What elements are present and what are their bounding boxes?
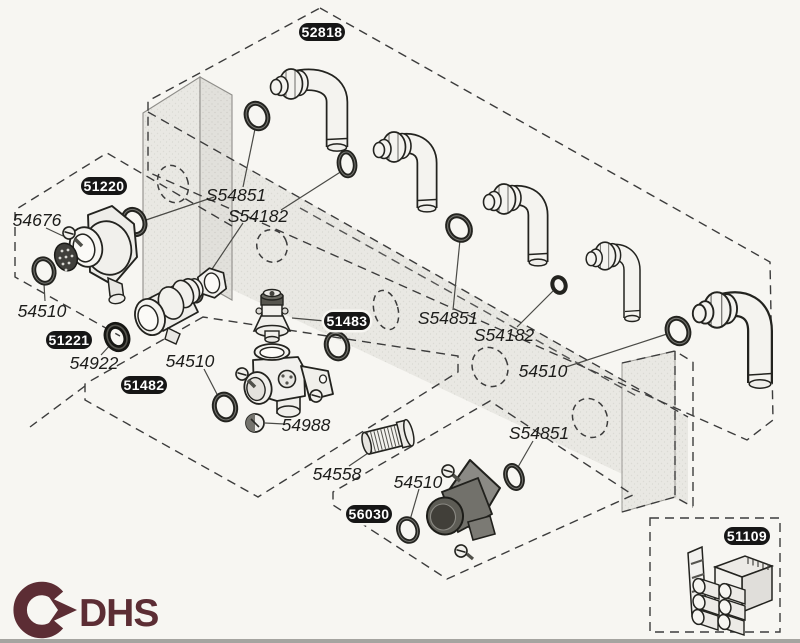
part-label-s54182-mid: S54182 (474, 325, 535, 345)
svg-text:51109: 51109 (727, 528, 767, 544)
svg-text:51482: 51482 (124, 377, 165, 393)
part-badge-56030: 56030 (344, 503, 395, 526)
part-badge-51109: 51109 (722, 525, 773, 548)
part-label-s54851-top: S54851 (206, 185, 266, 205)
part-label-54510-bottom: 54510 (394, 472, 443, 492)
part-54988-plug (246, 414, 264, 432)
part-badge-51220: 51220 (79, 175, 130, 198)
part-label-54510-left: 54510 (18, 301, 67, 321)
part-badge-52818: 52818 (297, 21, 348, 44)
parts-diagram-canvas: 54676 54510 54922 54510 S54851 S54182 S5… (0, 0, 800, 643)
part-badge-51482: 51482 (119, 374, 170, 397)
part-label-54558: 54558 (313, 464, 362, 484)
right-end-panel (622, 351, 675, 512)
svg-text:51221: 51221 (49, 332, 90, 348)
part-label-54510-mid-left: 54510 (166, 351, 215, 371)
part-label-s54851-bottom: S54851 (509, 423, 569, 443)
part-label-54676: 54676 (13, 210, 62, 230)
logo-text: DHS (79, 592, 158, 635)
part-badge-51483: 51483 (322, 310, 373, 333)
scan-edge-strip (0, 639, 800, 643)
part-badge-51221: 51221 (44, 329, 95, 352)
svg-text:51483: 51483 (327, 313, 368, 329)
svg-text:56030: 56030 (349, 506, 390, 522)
part-label-s54851-mid: S54851 (418, 308, 478, 328)
part-label-54988: 54988 (282, 415, 331, 435)
exploded-parts-diagram-page: 54676 54510 54922 54510 S54851 S54182 S5… (0, 0, 800, 643)
svg-text:51220: 51220 (84, 178, 125, 194)
svg-text:52818: 52818 (302, 24, 343, 40)
part-label-s54182-top: S54182 (228, 206, 289, 226)
part-label-54922: 54922 (70, 353, 119, 373)
part-label-54510-mid-right: 54510 (519, 361, 568, 381)
